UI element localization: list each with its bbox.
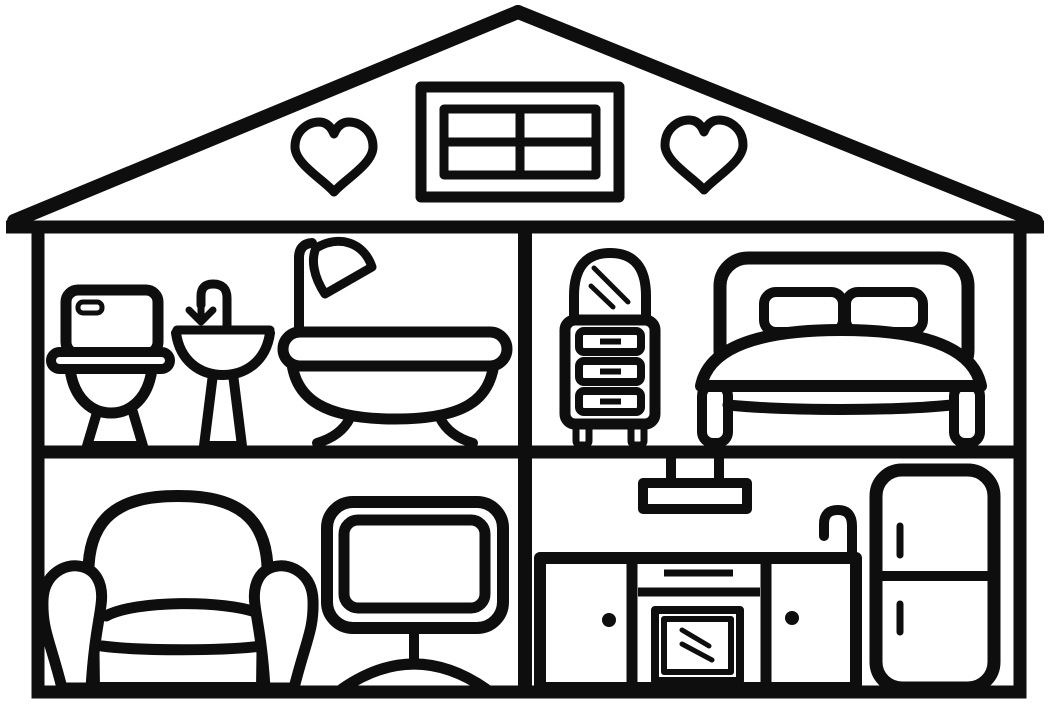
tub-rim [283,332,507,366]
attic [295,87,743,197]
double-bed [701,258,981,443]
kitchen-counter [540,558,856,688]
toilet-bowl [70,369,152,413]
tv-screen [344,520,485,608]
tv-stand-base [342,664,486,689]
armchair [43,496,313,688]
cabinet-knob-right [785,611,799,625]
attic-window [421,87,619,197]
kitchen-faucet [824,510,852,556]
room-bathroom [51,241,507,446]
heart-icon-right [665,120,743,190]
toilet-tank [66,290,158,354]
armchair-front-band [102,646,261,650]
cabinet-knob-left [602,613,616,627]
sink-basin [176,333,270,375]
tub-leg-right [440,418,473,443]
toilet-seat [51,352,170,369]
hood-canopy [643,483,747,509]
water-arrow-icon [189,305,213,322]
cooker-hood [643,451,747,509]
bathtub-with-shower [283,241,507,443]
bed-blanket [701,330,981,386]
dollhouse-illustration [0,0,1050,713]
toilet [51,290,170,446]
armchair-back [88,496,267,688]
tub-leg-left [317,418,350,443]
coloring-page [0,0,1050,713]
bed-leg-right [954,385,980,443]
room-bedroom [565,253,981,445]
television [327,502,503,689]
room-living [43,496,503,689]
tub-bowl [292,364,494,419]
toilet-flush-button [78,302,102,313]
bed-frame-rail [728,405,952,410]
sink-column [204,374,242,446]
bed-leg-left [702,385,728,443]
room-kitchen [540,451,994,688]
heart-icon-left [295,122,373,192]
pedestal-sink [176,284,270,446]
refrigerator [876,470,994,688]
shower-head [313,241,372,294]
armchair-armrest-left [43,566,102,688]
armchair-armrest-right [254,566,313,688]
dresser-mirror [574,253,646,324]
dresser-with-mirror [565,253,655,445]
